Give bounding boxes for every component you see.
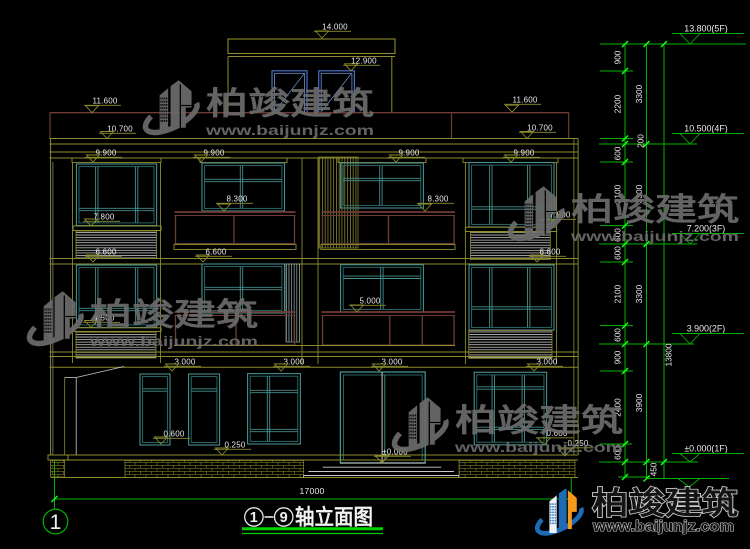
svg-text:900: 900 [613,50,623,64]
svg-text:www.baijunjz.com: www.baijunjz.com [570,229,739,244]
svg-text:www.baijunjz.com: www.baijunjz.com [454,440,623,455]
svg-text:9: 9 [280,510,288,526]
svg-text:900: 900 [613,350,623,364]
svg-text:柏竣建筑: 柏竣建筑 [90,296,259,332]
svg-text:3900: 3900 [634,393,644,412]
svg-text:轴立面图: 轴立面图 [295,505,373,530]
svg-text:11.600: 11.600 [512,96,537,105]
svg-text:600: 600 [613,328,623,342]
svg-text:柏竣建筑: 柏竣建筑 [571,191,740,227]
svg-text:8.300: 8.300 [226,195,247,204]
svg-text:柏竣建筑: 柏竣建筑 [206,85,375,121]
svg-text:200: 200 [636,134,646,148]
svg-text:17000: 17000 [300,486,325,496]
svg-text:www.baijunjz.com: www.baijunjz.com [205,123,374,138]
svg-text:5.000: 5.000 [359,297,380,306]
svg-text:±0.000(1F): ±0.000(1F) [684,444,727,454]
svg-text:13800: 13800 [664,343,674,366]
svg-text:柏竣建筑: 柏竣建筑 [592,486,738,521]
svg-text:10.500(4F): 10.500(4F) [684,124,727,134]
svg-text:13.800(5F): 13.800(5F) [684,24,727,34]
svg-text:3300: 3300 [634,284,644,303]
svg-text:3300: 3300 [634,84,644,103]
svg-text:3.900(2F): 3.900(2F) [687,324,726,334]
svg-text:8.300: 8.300 [427,195,448,204]
svg-text:2100: 2100 [613,284,623,303]
svg-text:1: 1 [50,511,62,534]
svg-text:600: 600 [613,246,623,260]
svg-text:10.700: 10.700 [107,125,133,134]
svg-text:14.000: 14.000 [322,23,348,32]
svg-text:柏竣建筑: 柏竣建筑 [455,402,624,438]
svg-text:1: 1 [250,510,258,526]
svg-text:2200: 2200 [613,94,623,113]
svg-text:11.600: 11.600 [92,97,117,106]
svg-text:www.baijunjz.com: www.baijunjz.com [89,334,258,349]
svg-text:600: 600 [613,146,623,160]
svg-text:www.baijunjz.com: www.baijunjz.com [592,519,734,535]
svg-text:450: 450 [649,462,659,476]
